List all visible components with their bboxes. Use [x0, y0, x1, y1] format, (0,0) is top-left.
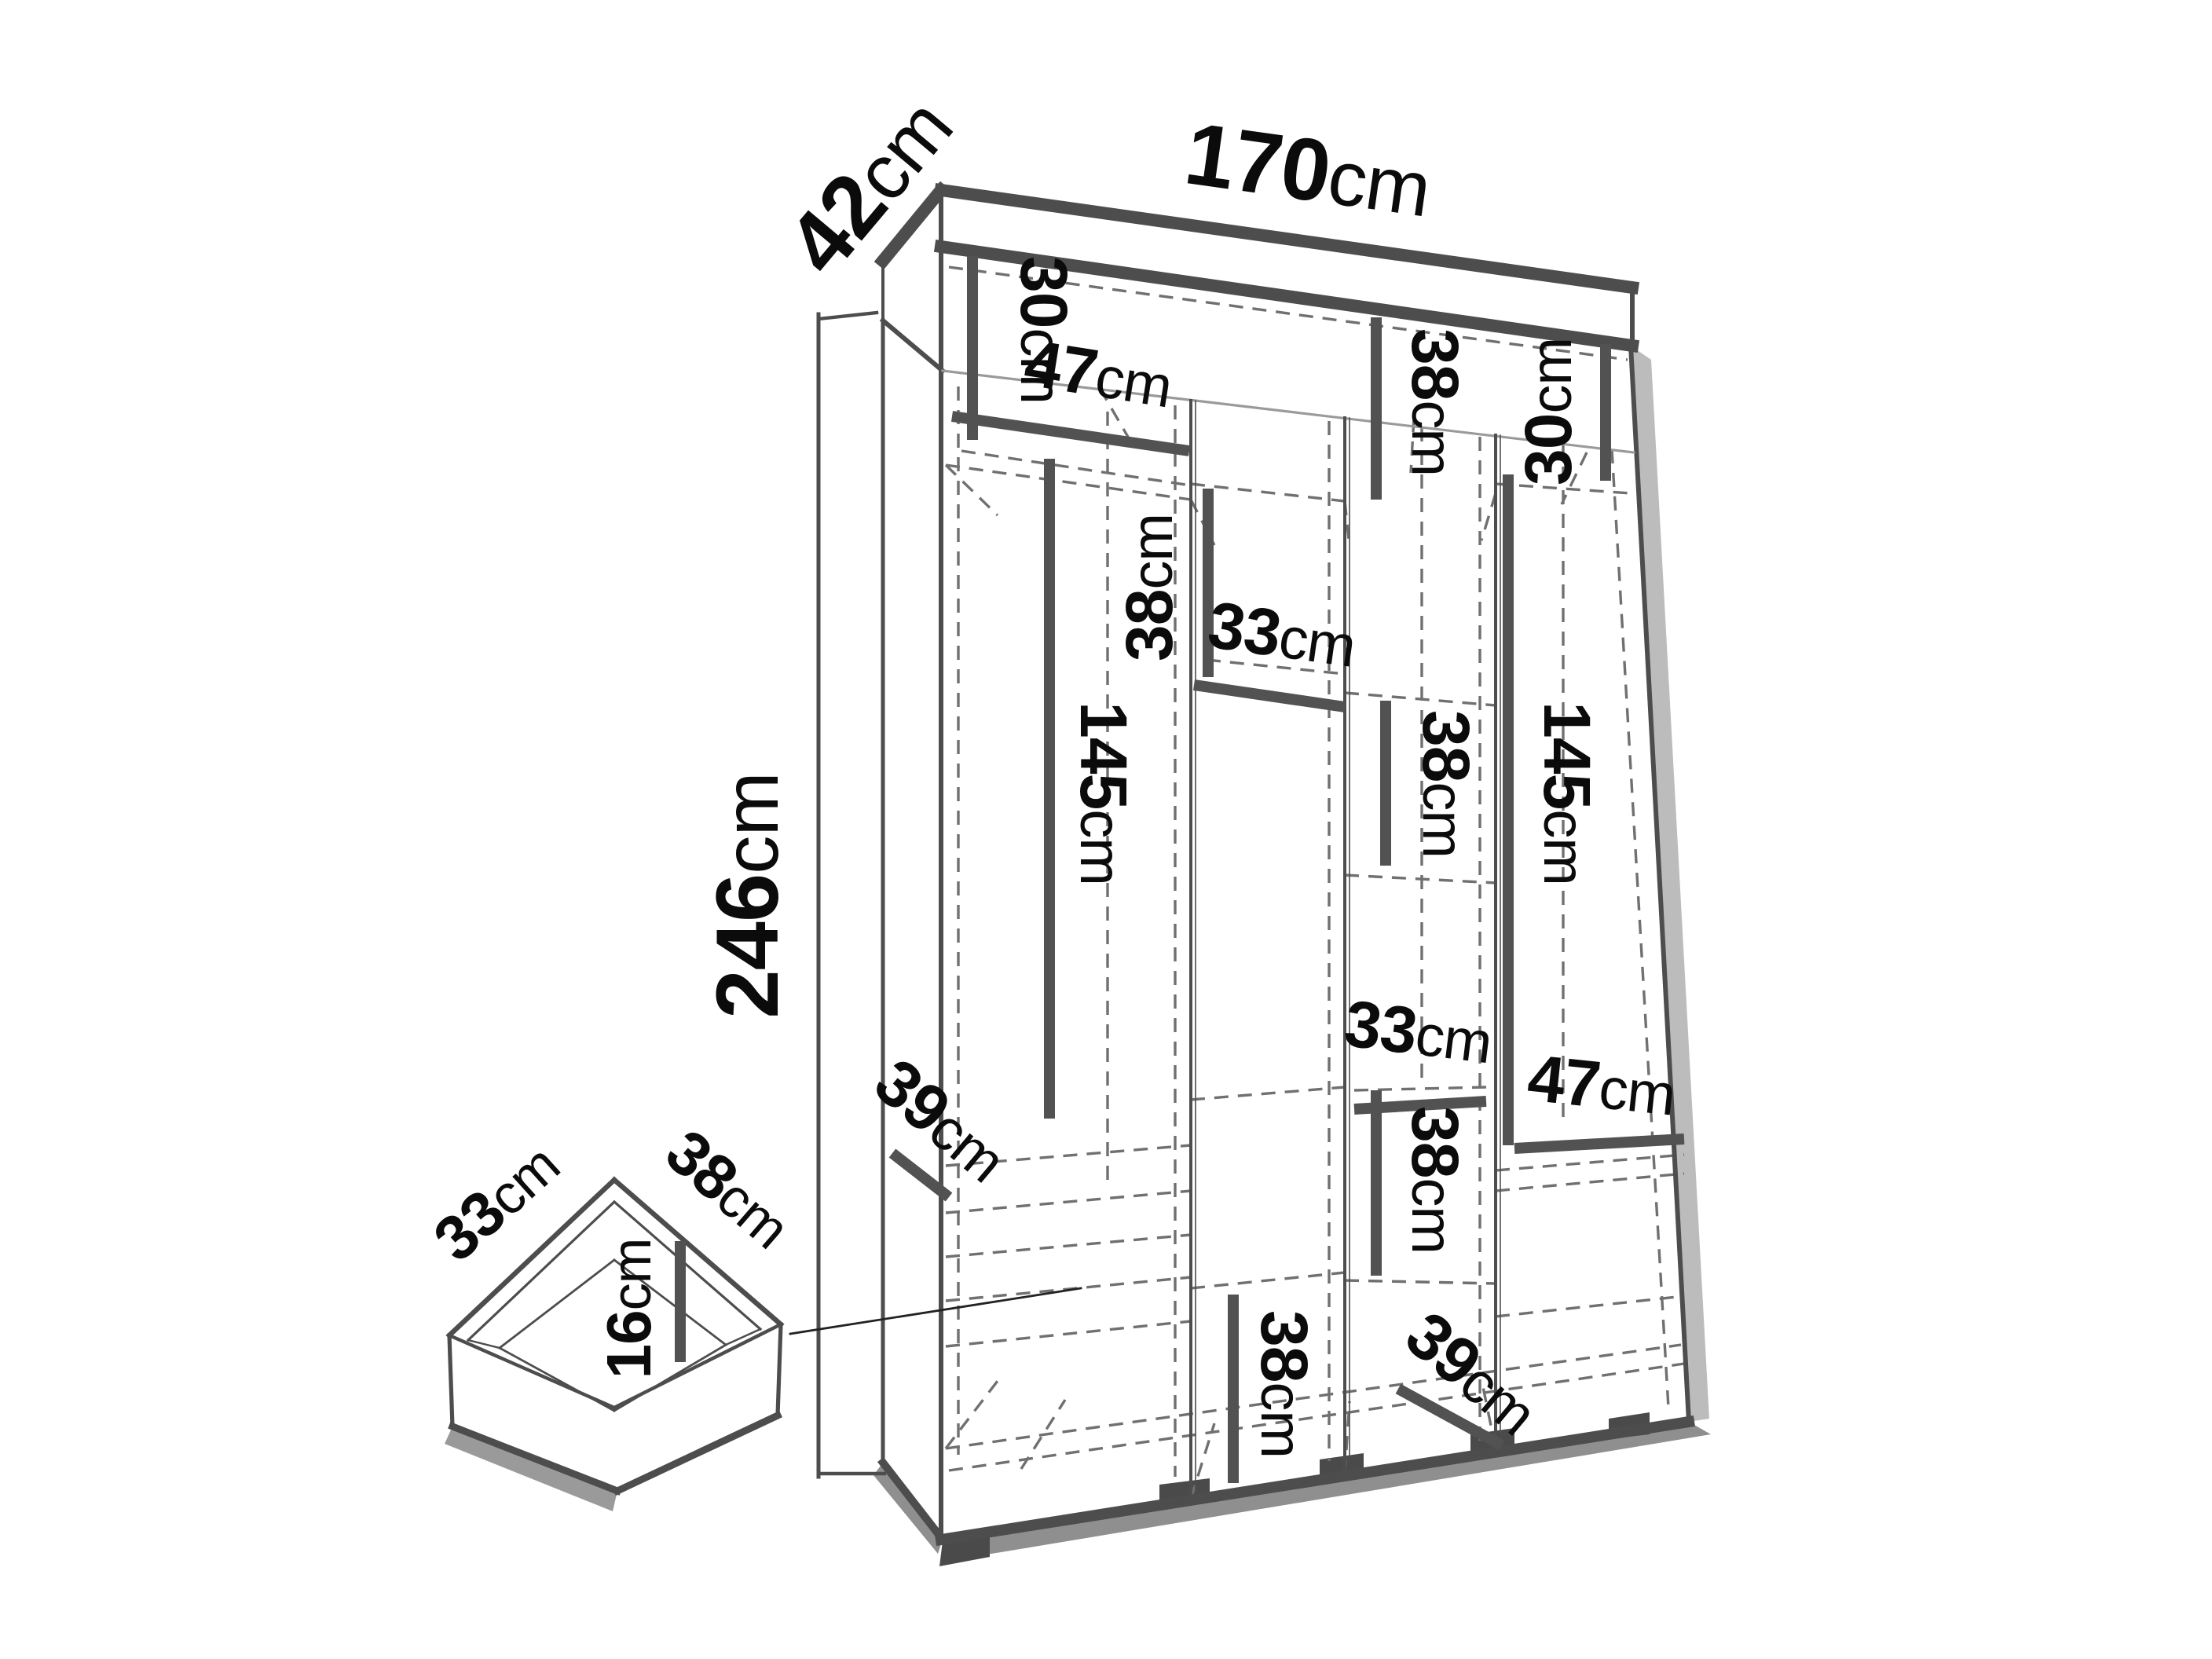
hidden-edge	[946, 465, 998, 515]
cabinet-edge	[778, 1324, 781, 1415]
hidden-edge	[946, 465, 1191, 500]
dim-33cm-middle-bar	[1194, 685, 1345, 707]
dim-47cm-top-left: 47cm	[1020, 325, 1177, 421]
dim-38cm-bottom: 38cm	[1247, 1310, 1321, 1458]
cabinet-edge	[819, 313, 877, 319]
cabinet-edge	[452, 1426, 617, 1491]
cabinet-edge	[883, 1463, 943, 1540]
hidden-edge	[1191, 484, 1345, 501]
hidden-edge	[1496, 1296, 1684, 1317]
dim-30cm-top-right: 30cm	[1511, 338, 1585, 485]
hidden-edge	[1345, 1280, 1496, 1284]
dim-38cm-lower-middle: 38cm	[1398, 1106, 1472, 1254]
dim-145cm-left: 145cm	[1067, 701, 1141, 885]
dim-145cm-right: 145cm	[1530, 701, 1604, 885]
dim-47cm-lower-right: 47cm	[1525, 1041, 1679, 1130]
cabinet-edge	[790, 1288, 1081, 1334]
dim-height-246cm: 246cm	[698, 772, 797, 1018]
cabinet-edge	[883, 320, 943, 371]
side-bottom-shadow	[873, 1463, 943, 1554]
dim-47cm-lower-right-bar	[1514, 1139, 1684, 1148]
cabinet-edge	[941, 1422, 1689, 1540]
hidden-edge	[946, 1321, 1191, 1346]
dim-33cm-middle: 33cm	[1203, 588, 1360, 681]
drawer-dim-38cm-depth: 38cm	[653, 1116, 804, 1261]
hidden-edge	[946, 1235, 1191, 1257]
hidden-edge	[1345, 693, 1496, 705]
bottom-shadow	[941, 1422, 1711, 1558]
right-shadow	[1631, 346, 1709, 1422]
hidden-edge	[946, 1277, 1191, 1301]
hidden-edge	[946, 1191, 1191, 1213]
diagram-page: 42cm170cm246cm30cm47cm38cm30cm38cm33cm38…	[0, 0, 2212, 1659]
dim-38cm-middle: 38cm	[1409, 710, 1483, 858]
hidden-edge	[1191, 1087, 1345, 1100]
cabinet-edge	[617, 1415, 778, 1491]
dim-47cm-top-left-bar	[952, 416, 1189, 451]
dim-38cm-top-middle: 38cm	[1398, 328, 1472, 476]
hidden-edge	[1191, 1273, 1345, 1288]
hidden-edge	[946, 1381, 998, 1448]
dim-38cm-hanging: 38cm	[1112, 514, 1186, 661]
drawer-dim-33cm-width: 33cm	[420, 1129, 571, 1275]
drawer-shadow	[445, 1426, 617, 1511]
hidden-edge	[961, 451, 1191, 485]
wardrobe-dimension-diagram: 42cm170cm246cm30cm47cm38cm30cm38cm33cm38…	[0, 0, 2212, 1659]
hidden-edge	[1345, 875, 1496, 883]
hidden-edge	[1496, 1155, 1684, 1170]
cabinet-edge	[449, 1335, 452, 1426]
dim-33cm-lower: 33cm	[1341, 986, 1496, 1077]
dim-width-170cm: 170cm	[1180, 104, 1437, 235]
hidden-edge	[1354, 1087, 1486, 1090]
drawer-dim-16cm-height: 16cm	[594, 1239, 664, 1379]
hidden-edge	[1481, 493, 1496, 540]
